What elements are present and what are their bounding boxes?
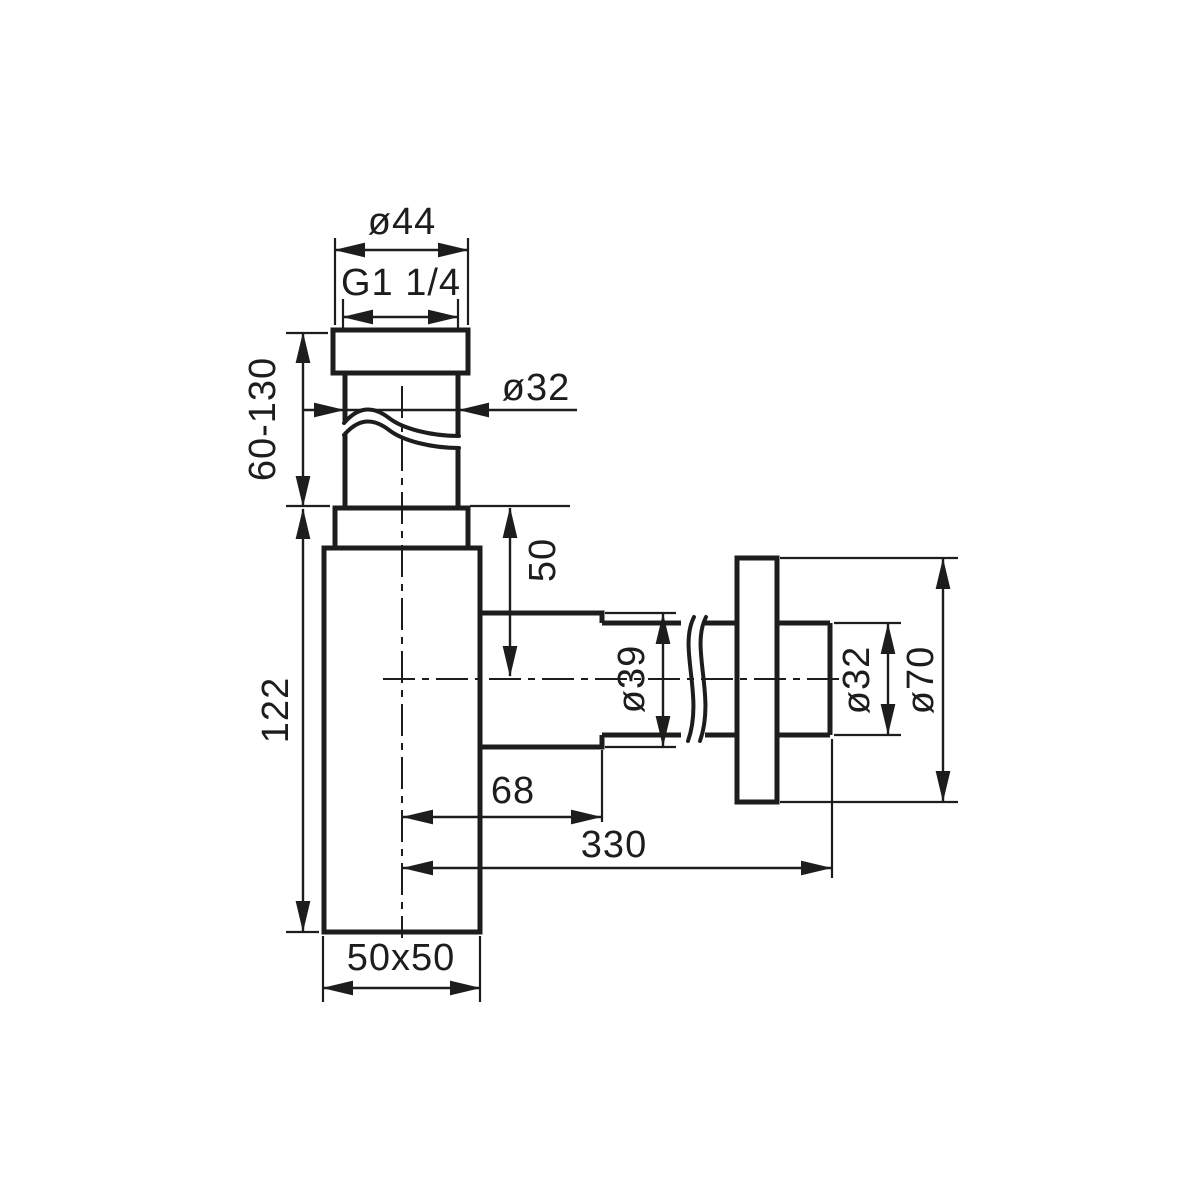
dimension-label: ø39 (611, 645, 653, 713)
drawing-canvas: ø44 G1 1/4 ø32 60-130 122 (0, 0, 1200, 1200)
dimension-label: G1 1/4 (341, 262, 461, 304)
dim-thread-size: G1 1/4 (341, 262, 461, 328)
dim-inlet-height-range: 60-130 (242, 333, 330, 506)
dimension-label: 50 (522, 538, 564, 582)
dimension-label: 122 (255, 677, 297, 743)
dim-body-footprint: 50x50 (323, 936, 480, 1002)
dimension-label: ø32 (836, 646, 878, 714)
dimension-label: 330 (581, 824, 647, 866)
dimension-label: ø32 (502, 367, 570, 409)
dimension-label: ø44 (368, 201, 436, 243)
dim-outlet-center-offset: 50 (470, 506, 570, 676)
dimension-label: 50x50 (347, 937, 456, 979)
inlet-nut (333, 330, 468, 373)
dimension-label: 60-130 (242, 357, 284, 481)
dimension-label: ø70 (900, 646, 942, 714)
dim-ext (286, 333, 330, 506)
dim-outlet-pipe-diameter: ø32 (834, 623, 901, 735)
siphon-outline (324, 330, 830, 932)
siphon-technical-drawing: ø44 G1 1/4 ø32 60-130 122 (0, 0, 1200, 1200)
dimension-label: 68 (491, 770, 535, 812)
dim-body-height: 122 (255, 509, 319, 932)
